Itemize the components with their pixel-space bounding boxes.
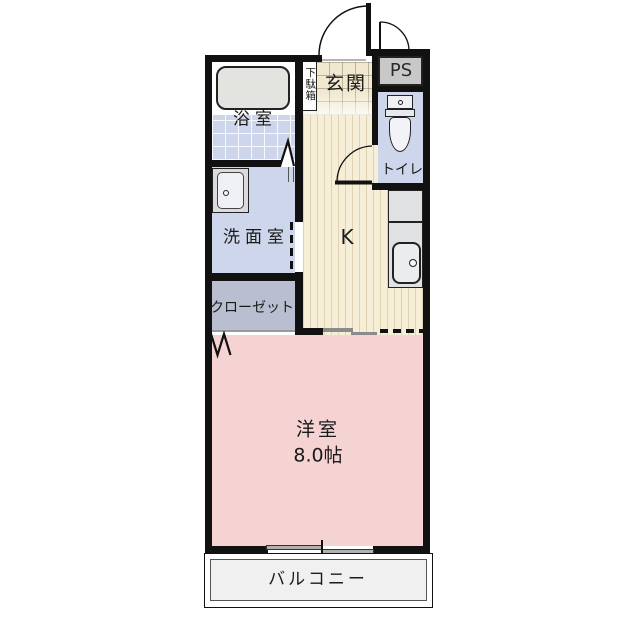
wall-bottom-right [373, 546, 430, 553]
wall-western-room-top [303, 328, 323, 335]
western-room-size-label: 8.0帖 [293, 447, 342, 466]
washroom-opening-dashed [290, 222, 293, 272]
western-room-floor [212, 335, 423, 546]
entrance-threshold [322, 59, 366, 61]
sliding-door-upper [323, 328, 353, 332]
wall-ps-left [372, 49, 378, 145]
closet-door-track [212, 330, 295, 332]
shoe-cabinet-label: 下駄箱 [305, 67, 316, 102]
balcony-label: バルコニー [268, 572, 368, 589]
wall-washroom-bottom [205, 273, 303, 281]
wall-bottom-left [205, 546, 268, 553]
floor-plan: 玄関 下駄箱 PS トイレ 浴室 洗面室 K クローゼット 洋室 8.0帖 バル… [0, 0, 640, 640]
western-room-label: 洋室 [296, 421, 340, 440]
bathtub-icon [216, 66, 290, 110]
wall-toilet-bottom [372, 183, 430, 190]
kitchen-room-opening-dashed [380, 329, 423, 333]
wall-right [423, 49, 430, 553]
entrance-label: 玄関 [325, 75, 367, 94]
kitchen-counter-divider [388, 221, 423, 223]
washbasin-faucet-icon [223, 190, 229, 196]
wall-mid-vertical-lower [295, 272, 303, 335]
entrance-door-leaf [366, 3, 371, 56]
toilet-tank-button-icon [398, 100, 403, 105]
washbasin-bowl-icon [217, 172, 244, 209]
sliding-door-lower [351, 332, 377, 336]
wall-ps-bottom [372, 86, 423, 92]
closet-label: クローゼット [210, 301, 294, 315]
bath-door-frame-right [293, 167, 294, 182]
bathroom-label: 浴室 [233, 112, 277, 129]
washroom-label: 洗面室 [223, 230, 289, 247]
toilet-seat-icon [385, 109, 415, 117]
wall-top-right [371, 49, 430, 56]
kitchen-label: K [340, 227, 353, 247]
entrance-door-swing-arc [319, 6, 368, 55]
pipe-space-label: PS [390, 62, 412, 80]
wall-top-left [205, 55, 322, 62]
wall-bathroom-bottom [212, 160, 281, 167]
bath-door-frame-left [288, 167, 289, 182]
balcony-window-pane-left [266, 545, 322, 550]
ps-door-swing-arc [380, 22, 409, 51]
kitchen-faucet-icon [409, 259, 417, 267]
wall-mid-vertical-upper [295, 55, 303, 222]
toilet-label: トイレ [381, 163, 423, 177]
